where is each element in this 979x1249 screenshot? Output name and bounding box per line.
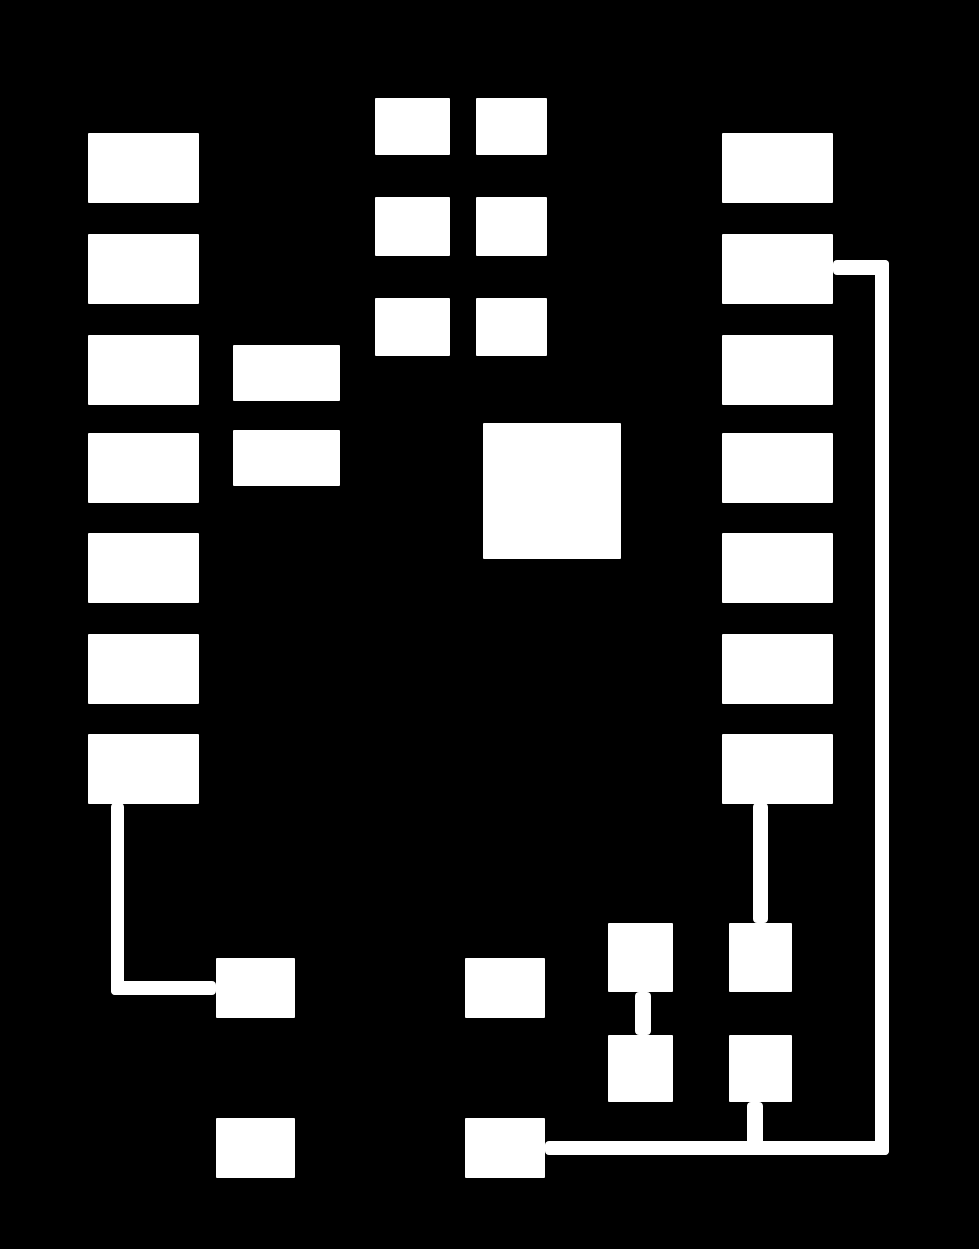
node-left-col-7[interactable]	[88, 734, 199, 804]
node-grid-r2c1[interactable]	[375, 197, 450, 256]
connector-left-hook-segment-2	[111, 981, 216, 995]
node-right-col-5[interactable]	[722, 533, 833, 603]
node-bottom-left-upper[interactable]	[216, 958, 295, 1018]
node-left-col-4[interactable]	[88, 433, 199, 503]
node-right-col-2[interactable]	[722, 234, 833, 304]
node-left-col-1[interactable]	[88, 133, 199, 203]
node-grid-r1c2[interactable]	[476, 98, 547, 155]
node-center-large[interactable]	[483, 423, 621, 559]
node-left-col-2[interactable]	[88, 234, 199, 304]
connector-rightcol7-to-b-segment-1	[753, 803, 768, 923]
node-side-col-1[interactable]	[233, 345, 340, 401]
node-right-col-4[interactable]	[722, 433, 833, 503]
connector-left-hook-segment-1	[111, 803, 124, 995]
node-grid-r3c1[interactable]	[375, 298, 450, 356]
node-cluster-b[interactable]	[729, 923, 792, 992]
connector-right-loop-segment-3	[545, 1141, 889, 1155]
node-grid-r3c2[interactable]	[476, 298, 547, 356]
diagram-canvas	[0, 0, 979, 1249]
node-left-col-3[interactable]	[88, 335, 199, 405]
node-side-col-2[interactable]	[233, 430, 340, 486]
node-bottom-left-lower[interactable]	[216, 1118, 295, 1178]
node-left-col-6[interactable]	[88, 634, 199, 704]
node-cluster-a[interactable]	[608, 923, 673, 992]
node-cluster-c[interactable]	[608, 1035, 673, 1102]
node-right-col-1[interactable]	[722, 133, 833, 203]
connector-a-to-c-segment-1	[635, 992, 651, 1035]
node-bottom-mid-upper[interactable]	[465, 958, 545, 1018]
node-grid-r1c1[interactable]	[375, 98, 450, 155]
connector-d-to-loop-segment-1	[747, 1102, 763, 1147]
node-bottom-mid-lower[interactable]	[465, 1118, 545, 1178]
node-grid-r2c2[interactable]	[476, 197, 547, 256]
node-left-col-5[interactable]	[88, 533, 199, 603]
node-cluster-d[interactable]	[729, 1035, 792, 1102]
node-right-col-3[interactable]	[722, 335, 833, 405]
connector-right-loop-segment-2	[875, 260, 889, 1155]
node-right-col-6[interactable]	[722, 634, 833, 704]
node-right-col-7[interactable]	[722, 734, 833, 804]
